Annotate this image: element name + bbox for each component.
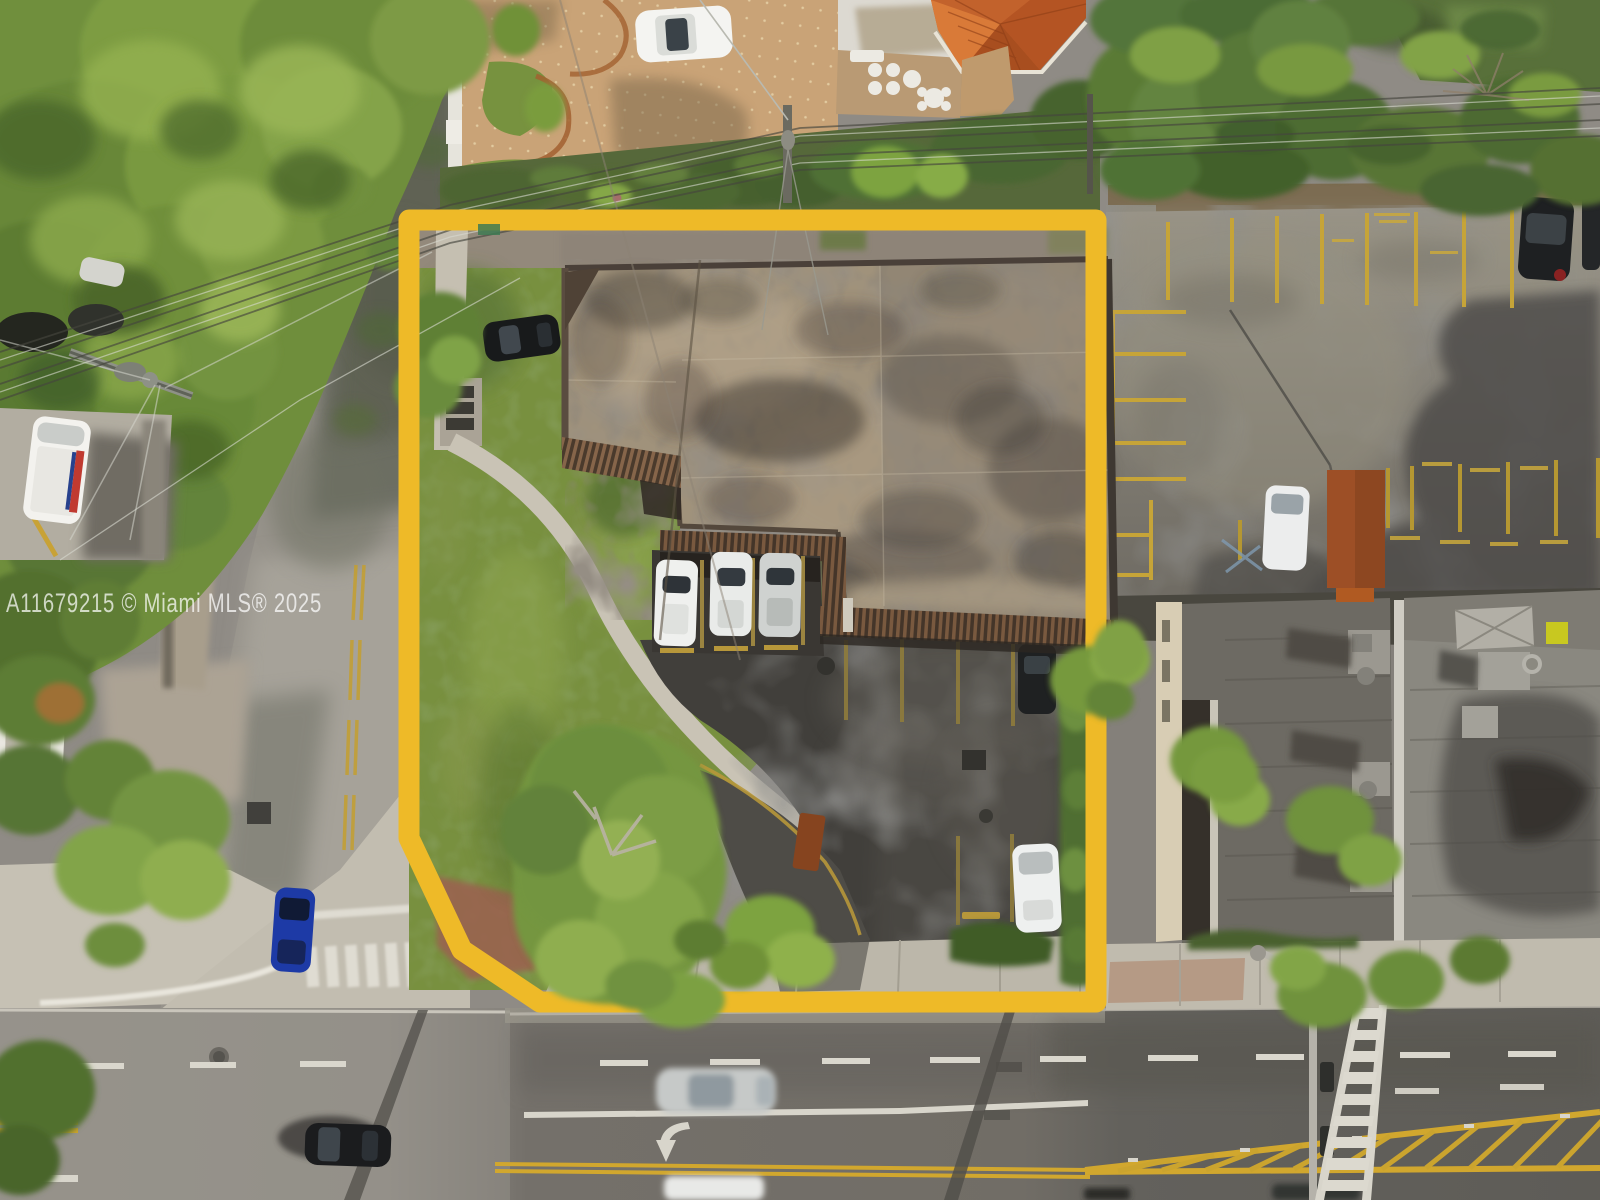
svg-text:A11679215 © Miami MLS® 2025: A11679215 © Miami MLS® 2025 (6, 588, 322, 618)
